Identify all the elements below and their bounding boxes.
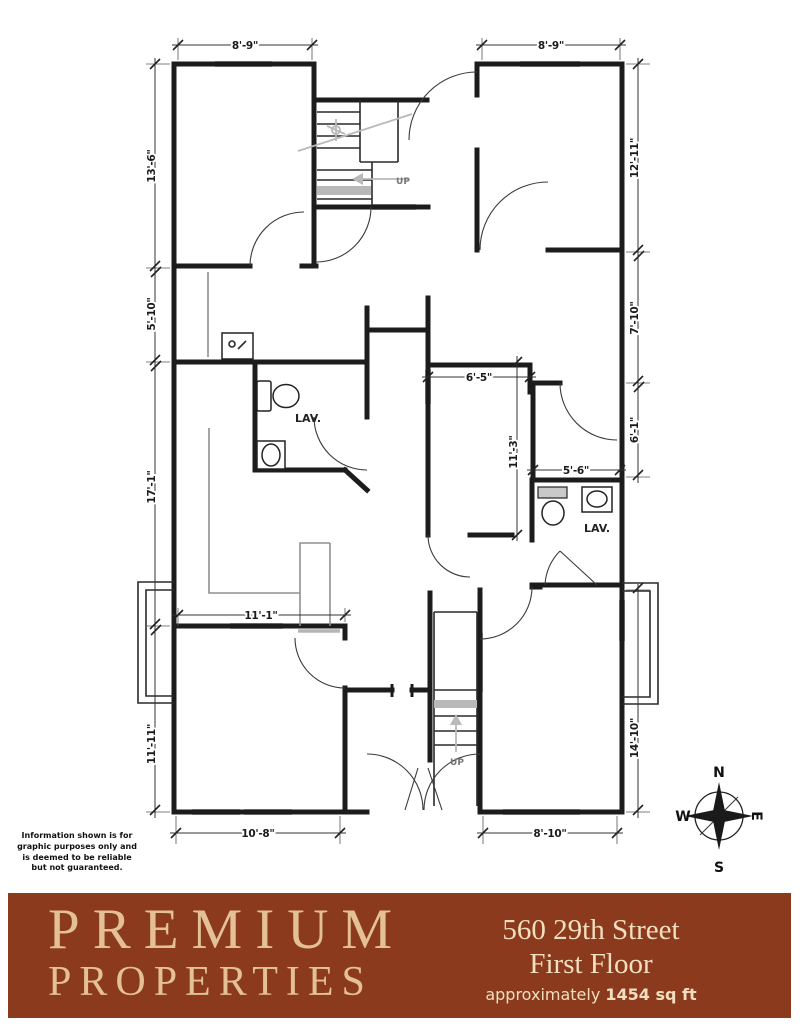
floor-plan: 8'-9" 8'-9" 13'-6" 5'-10" 17'-1" 11'-11"… [0, 0, 800, 890]
dim-inner-56: 5'-6" [563, 465, 589, 477]
lav2-sink-icon [582, 487, 612, 512]
lav1-sink-icon [257, 441, 285, 469]
disclaimer-text: Information shown is for graphic purpose… [14, 831, 140, 874]
dim-right-1: 12'-11" [629, 138, 641, 178]
address-line: 560 29th Street [416, 913, 766, 947]
dim-left-2: 5'-10" [146, 297, 158, 330]
footer-banner: PREMIUM PROPERTIES 560 29th Street First… [8, 893, 791, 1018]
lav2-toilet-icon [538, 487, 567, 525]
area-value: 1454 sq ft [605, 985, 696, 1004]
lav1-label: LAV. [295, 412, 321, 425]
listing-info: 560 29th Street First Floor approximatel… [416, 913, 766, 1004]
lav2-label: LAV. [584, 522, 610, 535]
dim-left-1: 13'-6" [146, 149, 158, 182]
dim-left-4: 11'-11" [146, 724, 158, 764]
dim-bottom-left: 10'-8" [241, 828, 274, 840]
bay-window-right [622, 583, 658, 704]
lower-staircase [434, 612, 477, 806]
area-prefix: approximately [485, 985, 605, 1004]
up-label-bottom: UP [450, 758, 464, 768]
compass-north-label: N [713, 765, 725, 781]
dimension-ticks [150, 40, 644, 838]
dim-right-3: 6'-1" [629, 417, 641, 443]
brand-line-1: PREMIUM [48, 901, 405, 958]
dimension-labels: 8'-9" 8'-9" 13'-6" 5'-10" 17'-1" 11'-11"… [146, 40, 641, 840]
upper-staircase [317, 100, 398, 205]
up-label-top: UP [396, 177, 410, 187]
bay-window-left [138, 582, 174, 703]
up-arrow-bottom [450, 714, 462, 752]
dim-top-right: 8'-9" [538, 40, 564, 52]
dim-right-4: 14'-10" [629, 718, 641, 758]
lav1-toilet-icon [257, 381, 299, 411]
compass-west-label: W [675, 809, 690, 825]
floor-line: First Floor [416, 947, 766, 981]
kitchen-appliance-icon [222, 333, 253, 359]
dim-inner-65: 6'-5" [466, 372, 492, 384]
compass-south-label: S [714, 860, 724, 876]
dim-top-left: 8'-9" [232, 40, 258, 52]
brand-logo: PREMIUM PROPERTIES [48, 901, 405, 1003]
area-line: approximately 1454 sq ft [416, 985, 766, 1004]
dim-inner-111: 11'-1" [244, 610, 277, 622]
dimension-lines [155, 45, 638, 833]
brand-line-2: PROPERTIES [48, 961, 405, 1003]
dim-bottom-right: 8'-10" [533, 828, 566, 840]
dim-left-3: 17'-1" [146, 470, 158, 503]
compass-rose: N S W E [675, 765, 764, 876]
dim-inner-113: 11'-3" [508, 435, 520, 468]
compass-east-label: E [748, 811, 764, 821]
dim-right-2: 7'-10" [629, 301, 641, 334]
